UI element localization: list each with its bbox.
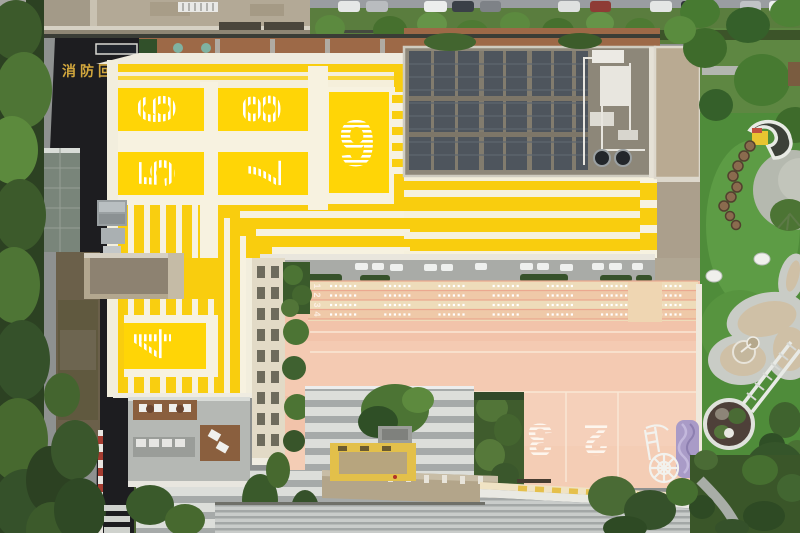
svg-text:9: 9 — [339, 106, 376, 180]
svg-text:8: 8 — [232, 94, 292, 124]
svg-text:2: 2 — [312, 292, 322, 297]
svg-text:5: 5 — [128, 159, 186, 188]
svg-text:7: 7 — [234, 159, 292, 188]
svg-text:6: 6 — [127, 94, 187, 124]
svg-text:1: 1 — [312, 283, 322, 288]
svg-text:3: 3 — [527, 414, 553, 466]
svg-text:4: 4 — [123, 329, 183, 359]
svg-text:3: 3 — [312, 302, 322, 307]
svg-text:4: 4 — [312, 311, 322, 316]
svg-text:2: 2 — [583, 413, 609, 465]
